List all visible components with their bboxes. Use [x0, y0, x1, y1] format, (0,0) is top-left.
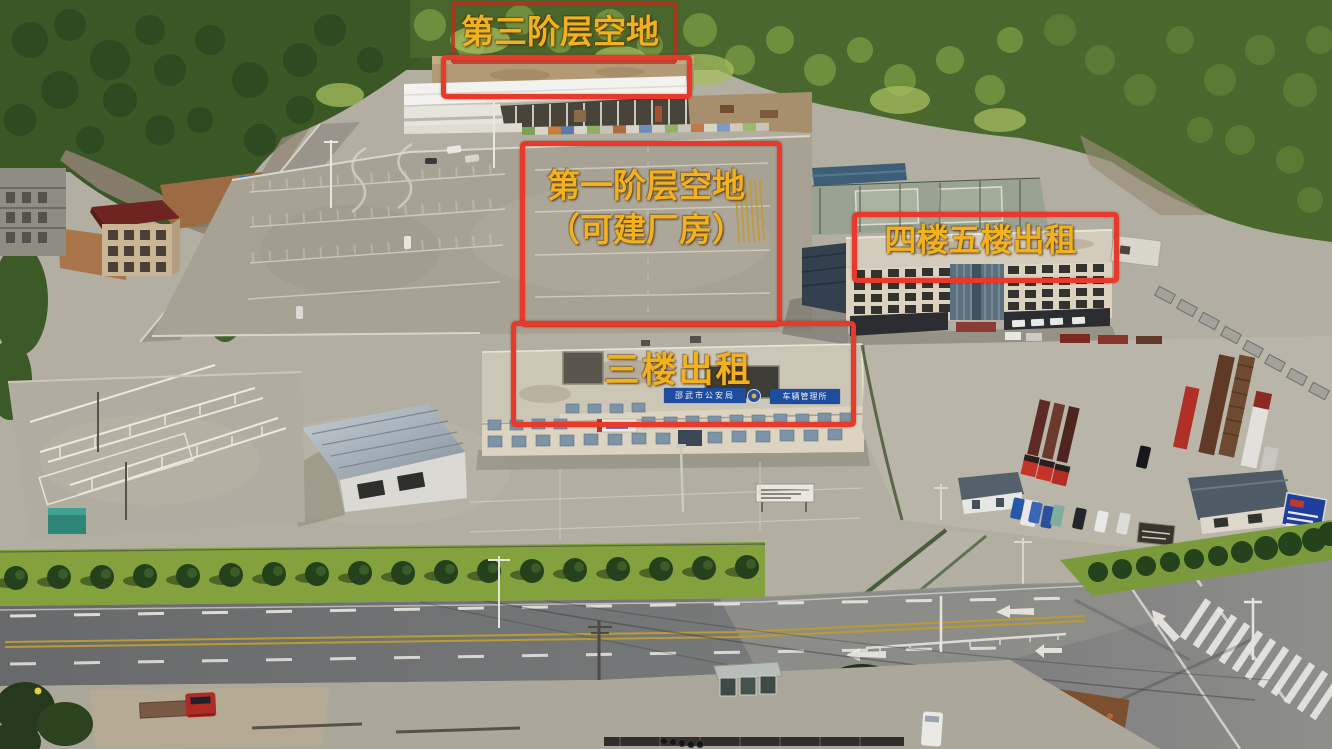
annotation-label-tier1-line2: （可建厂房）	[547, 208, 745, 252]
gatehouse	[1188, 470, 1292, 534]
annotated-aerial-photo: 第三阶层空地 第一阶层空地 （可建厂房） 四楼五楼出租 三楼出租 邵武市公安局 …	[0, 0, 1332, 749]
police-bureau-sign: 邵武市公安局	[664, 388, 746, 403]
annotation-label-tier1: 第一阶层空地 （可建厂房）	[525, 158, 767, 258]
annotation-label-floors45: 四楼五楼出租	[856, 214, 1105, 266]
bus-shelter	[714, 662, 782, 696]
annotation-box-tier3-land	[441, 55, 692, 99]
left-training-area	[8, 365, 305, 540]
annotation-label-tier3: 第三阶层空地	[451, 8, 669, 56]
annotation-label-tier1-line1: 第一阶层空地	[547, 164, 745, 208]
vehicle-office-sign: 车辆管理所	[770, 389, 840, 404]
